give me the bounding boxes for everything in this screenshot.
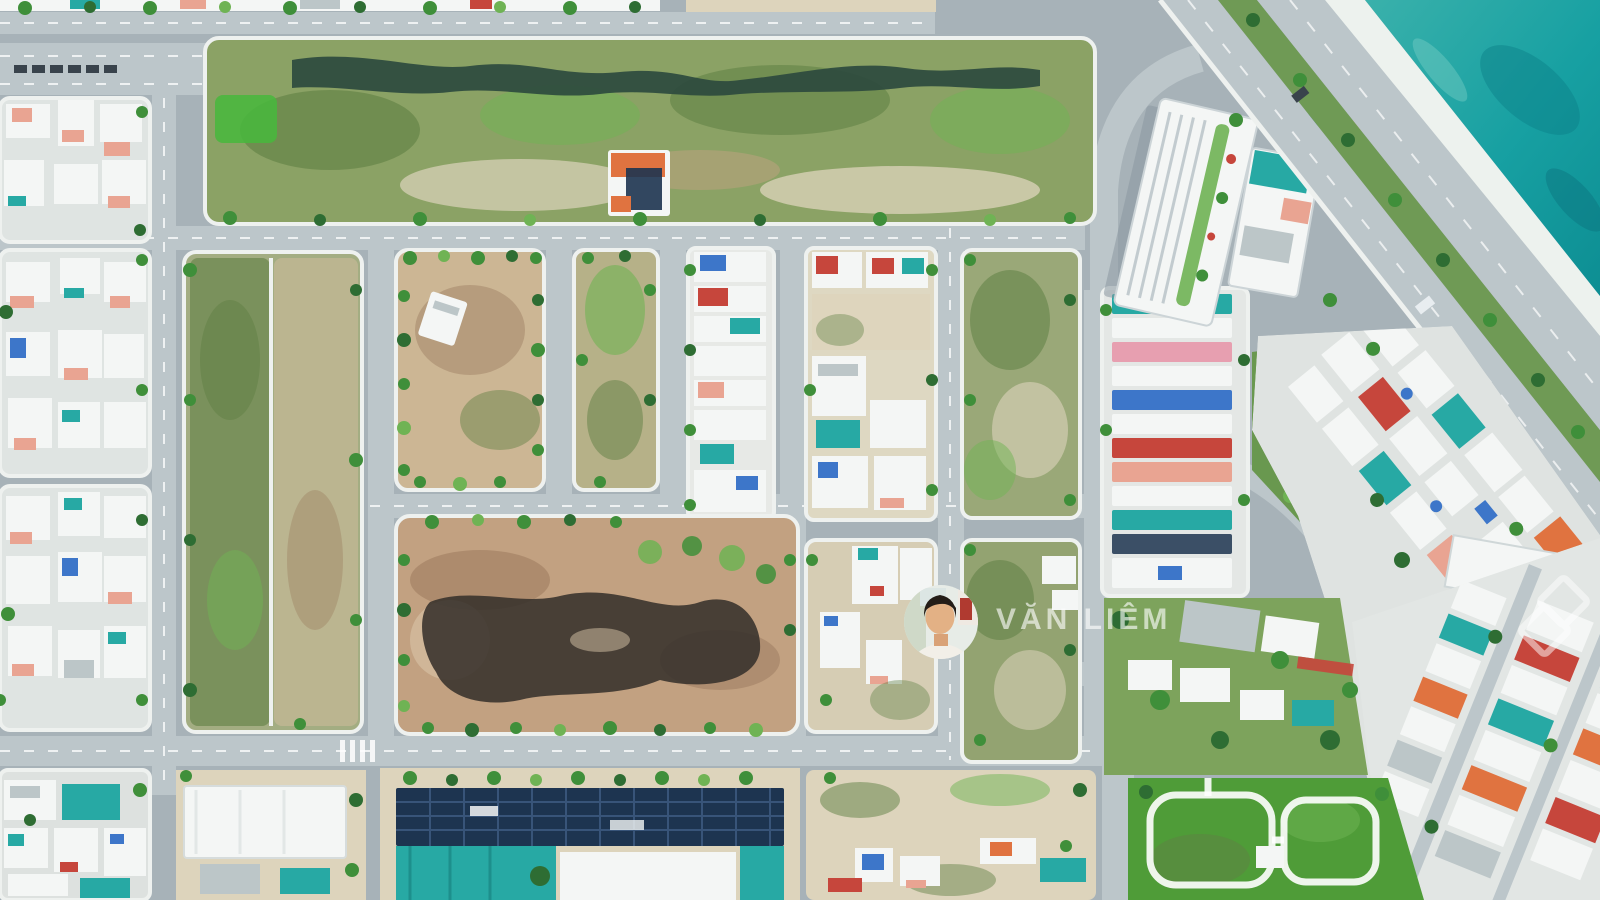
bottom-left-houses [0, 770, 150, 900]
scrubland-top [205, 38, 1095, 226]
townhouse-column-right [1100, 288, 1250, 596]
residential-block-left-mid [0, 250, 150, 476]
residential-block-left-lower [0, 486, 150, 730]
residential-block-top-left [0, 98, 150, 242]
dirt-block-a [396, 250, 545, 491]
bottom-middle-lots [806, 770, 1096, 900]
vacant-strip-block [183, 252, 363, 732]
solar-warehouse [380, 768, 800, 900]
aerial-photo: VĂN LIÊM [0, 0, 1600, 900]
green-field-paths [1128, 778, 1424, 900]
dirt-block-b [574, 250, 658, 490]
lone-house-solar [608, 150, 670, 216]
townhouse-column-b [804, 248, 938, 520]
bright-green-lot [215, 95, 277, 143]
watermark-name-text: VĂN LIÊM [996, 602, 1171, 636]
scrub-block-d [962, 540, 1080, 762]
townhouse-column-a [684, 248, 774, 520]
aerial-photo-stage: VĂN LIÊM [0, 0, 1600, 900]
white-warehouse [176, 770, 366, 900]
scrub-block-c [962, 250, 1080, 518]
